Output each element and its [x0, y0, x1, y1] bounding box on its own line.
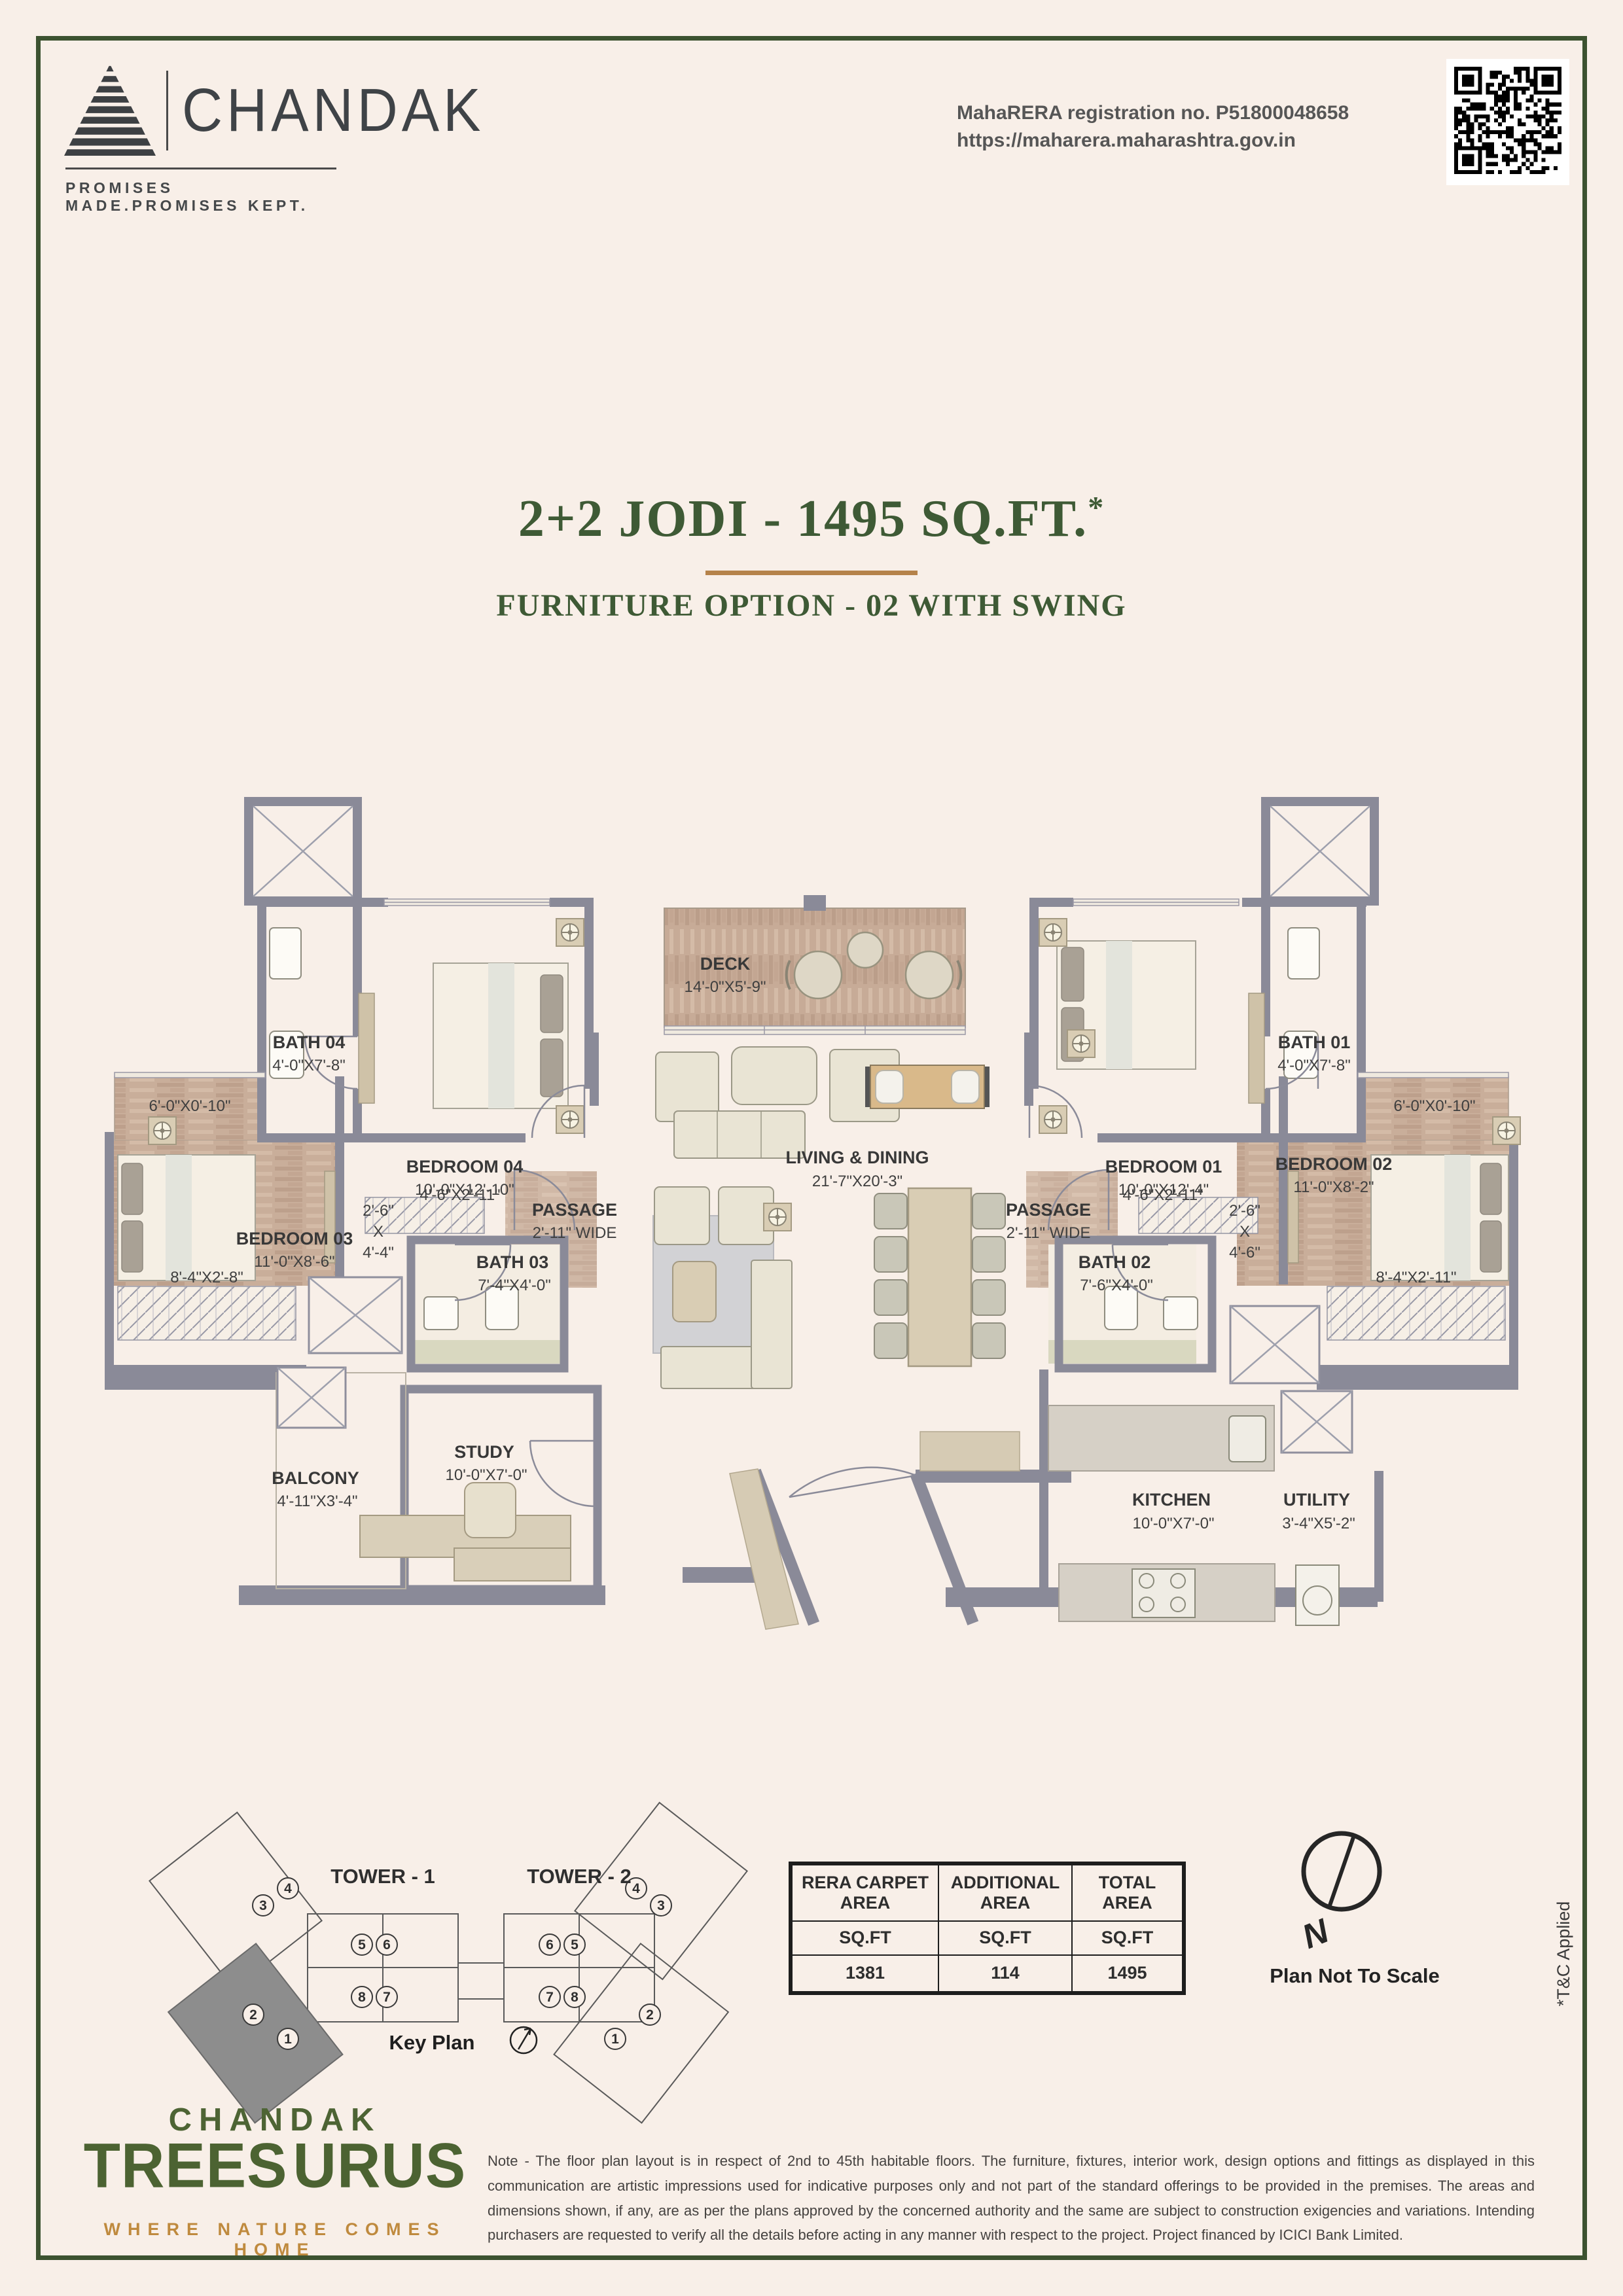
dim-passage-left: 4'-6"X2'-11" — [419, 1186, 500, 1204]
footer-logo-treesourus: TREES URUS — [98, 2130, 452, 2202]
svg-text:7'-6"X4'-0": 7'-6"X4'-0" — [1080, 1277, 1153, 1294]
room-label-bedroom-02: BEDROOM 02 — [1275, 1154, 1393, 1174]
tower-1-label: TOWER - 1 — [330, 1865, 435, 1888]
tnc-applied-note: *T&C Applied — [1554, 1849, 1575, 2058]
area-table: RERA CARPETAREA ADDITIONALAREA TOTALAREA… — [789, 1862, 1186, 1995]
svg-text:6: 6 — [383, 1937, 391, 1952]
svg-text:2'-6": 2'-6" — [363, 1202, 394, 1220]
footer-tagline: WHERE NATURE COMES HOME — [98, 2219, 452, 2260]
svg-text:X: X — [373, 1223, 383, 1241]
dim-balcony-right: 6'-0"X0'-10" — [1394, 1097, 1476, 1115]
chandak-pyramid-icon — [64, 64, 156, 156]
rera-registration: MahaRERA registration no. P51800048658 h… — [957, 99, 1349, 154]
brand-wordmark: CHANDAK — [182, 76, 485, 146]
table-unit-cell: SQ.FT — [793, 1922, 938, 1954]
svg-text:2'-11" WIDE: 2'-11" WIDE — [533, 1224, 617, 1242]
svg-text:2'-6": 2'-6" — [1229, 1202, 1260, 1220]
key-plan-compass-icon — [510, 2027, 537, 2053]
key-plan-label: Key Plan — [389, 2031, 475, 2054]
svg-text:3: 3 — [657, 1898, 665, 1913]
svg-text:6: 6 — [546, 1937, 554, 1952]
logo-divider — [166, 71, 168, 150]
svg-text:2'-11" WIDE: 2'-11" WIDE — [1007, 1224, 1091, 1242]
not-to-scale-note: Plan Not To Scale — [1250, 1964, 1459, 1988]
room-label-bath-03: BATH 03 — [476, 1252, 549, 1272]
brand-tagline: PROMISES MADE.PROMISES KEPT. — [65, 179, 353, 215]
qr-code — [1446, 59, 1569, 185]
rera-number: MahaRERA registration no. P51800048658 — [957, 99, 1349, 127]
dim-wardrobe-left: 8'-4"X2'-8" — [170, 1269, 243, 1286]
room-label-living-dining: LIVING & DINING — [785, 1148, 929, 1167]
svg-text:7: 7 — [546, 1990, 554, 2005]
table-header-rera: RERA CARPETAREA — [793, 1865, 938, 1920]
rera-url: https://maharera.maharashtra.gov.in — [957, 127, 1349, 154]
logo-rule — [65, 168, 336, 169]
room-label-bath-02: BATH 02 — [1079, 1252, 1151, 1272]
svg-text:7'-4"X4'-0": 7'-4"X4'-0" — [478, 1277, 551, 1294]
north-compass-icon: N — [1276, 1818, 1420, 1968]
room-label-balcony: BALCONY — [272, 1468, 359, 1488]
key-plan: 34 56 87 21 65 78 43 12 TOWER - 1 TOWER … — [92, 1812, 733, 2074]
page-subtitle: FURNITURE OPTION - 02 WITH SWING — [0, 588, 1623, 624]
svg-text:4'-6": 4'-6" — [1229, 1244, 1260, 1262]
room-label-bedroom-03: BEDROOM 03 — [236, 1229, 353, 1248]
svg-text:X: X — [1240, 1223, 1250, 1241]
page-title: 2+2 JODI - 1495 SQ.FT.* — [0, 489, 1623, 549]
svg-text:5: 5 — [571, 1937, 579, 1952]
dim-wardrobe-right: 8'-4"X2'-11" — [1376, 1269, 1456, 1286]
svg-text:14'-0"X5'-9": 14'-0"X5'-9" — [685, 978, 766, 996]
svg-text:10'-0"X7'-0": 10'-0"X7'-0" — [446, 1466, 527, 1484]
room-label-bath-04: BATH 04 — [273, 1033, 346, 1052]
svg-text:3: 3 — [259, 1898, 267, 1913]
tower-2-label: TOWER - 2 — [527, 1865, 632, 1888]
room-label-kitchen: KITCHEN — [1132, 1490, 1211, 1510]
svg-text:4'-0"X7'-8": 4'-0"X7'-8" — [272, 1057, 346, 1074]
svg-text:4: 4 — [284, 1881, 292, 1896]
room-label-passage-left: PASSAGE — [532, 1200, 617, 1220]
table-header-total: TOTALAREA — [1073, 1865, 1182, 1920]
svg-text:1: 1 — [611, 2032, 619, 2047]
highlighted-unit — [168, 1943, 342, 2123]
table-unit-cell: SQ.FT — [939, 1922, 1071, 1954]
dim-passage-right: 4'-6"X2'-11" — [1122, 1186, 1203, 1204]
table-value-total: 1495 — [1073, 1956, 1182, 1991]
room-label-utility: UTILITY — [1283, 1490, 1350, 1510]
title-asterisk: * — [1088, 490, 1105, 525]
dim-balcony-left: 6'-0"X0'-10" — [149, 1097, 231, 1115]
table-header-additional: ADDITIONALAREA — [939, 1865, 1071, 1920]
room-label-deck: DECK — [700, 954, 751, 974]
table-value-additional: 114 — [939, 1956, 1071, 1991]
room-label-bath-01: BATH 01 — [1278, 1033, 1351, 1052]
title-underline — [705, 571, 918, 575]
svg-text:2: 2 — [646, 2007, 654, 2022]
svg-text:3'-4"X5'-2": 3'-4"X5'-2" — [1282, 1515, 1355, 1532]
svg-text:4'-0"X7'-8": 4'-0"X7'-8" — [1277, 1057, 1351, 1074]
floor-plan: BATH 04 4'-0"X7'-8" BEDROOM 04 10'-0"X12… — [98, 779, 1525, 1695]
room-label-passage-right: PASSAGE — [1006, 1200, 1091, 1220]
swing — [865, 1065, 990, 1108]
svg-text:11'-0"X8'-2": 11'-0"X8'-2" — [1293, 1178, 1374, 1196]
room-label-bedroom-01: BEDROOM 01 — [1105, 1157, 1222, 1176]
svg-text:5: 5 — [358, 1937, 366, 1952]
svg-text:1: 1 — [284, 2032, 292, 2047]
svg-text:7: 7 — [383, 1990, 391, 2005]
footer-note: Note - The floor plan layout is in respe… — [488, 2149, 1535, 2248]
room-label-study: STUDY — [454, 1442, 514, 1462]
room-label-bedroom-04: BEDROOM 04 — [406, 1157, 524, 1176]
svg-text:4: 4 — [632, 1881, 640, 1896]
svg-text:21'-7"X20'-3": 21'-7"X20'-3" — [812, 1173, 902, 1190]
svg-text:N: N — [1297, 1912, 1335, 1956]
table-unit-cell: SQ.FT — [1073, 1922, 1182, 1954]
svg-text:4'-4": 4'-4" — [363, 1244, 394, 1262]
svg-text:2: 2 — [249, 2007, 257, 2022]
table-value-rera: 1381 — [793, 1956, 938, 1991]
svg-text:4'-11"X3'-4": 4'-11"X3'-4" — [277, 1492, 357, 1510]
svg-text:10'-0"X7'-0": 10'-0"X7'-0" — [1133, 1515, 1215, 1532]
svg-text:11'-0"X8'-6": 11'-0"X8'-6" — [254, 1253, 334, 1271]
svg-text:8: 8 — [571, 1990, 579, 2005]
svg-text:8: 8 — [358, 1990, 366, 2005]
